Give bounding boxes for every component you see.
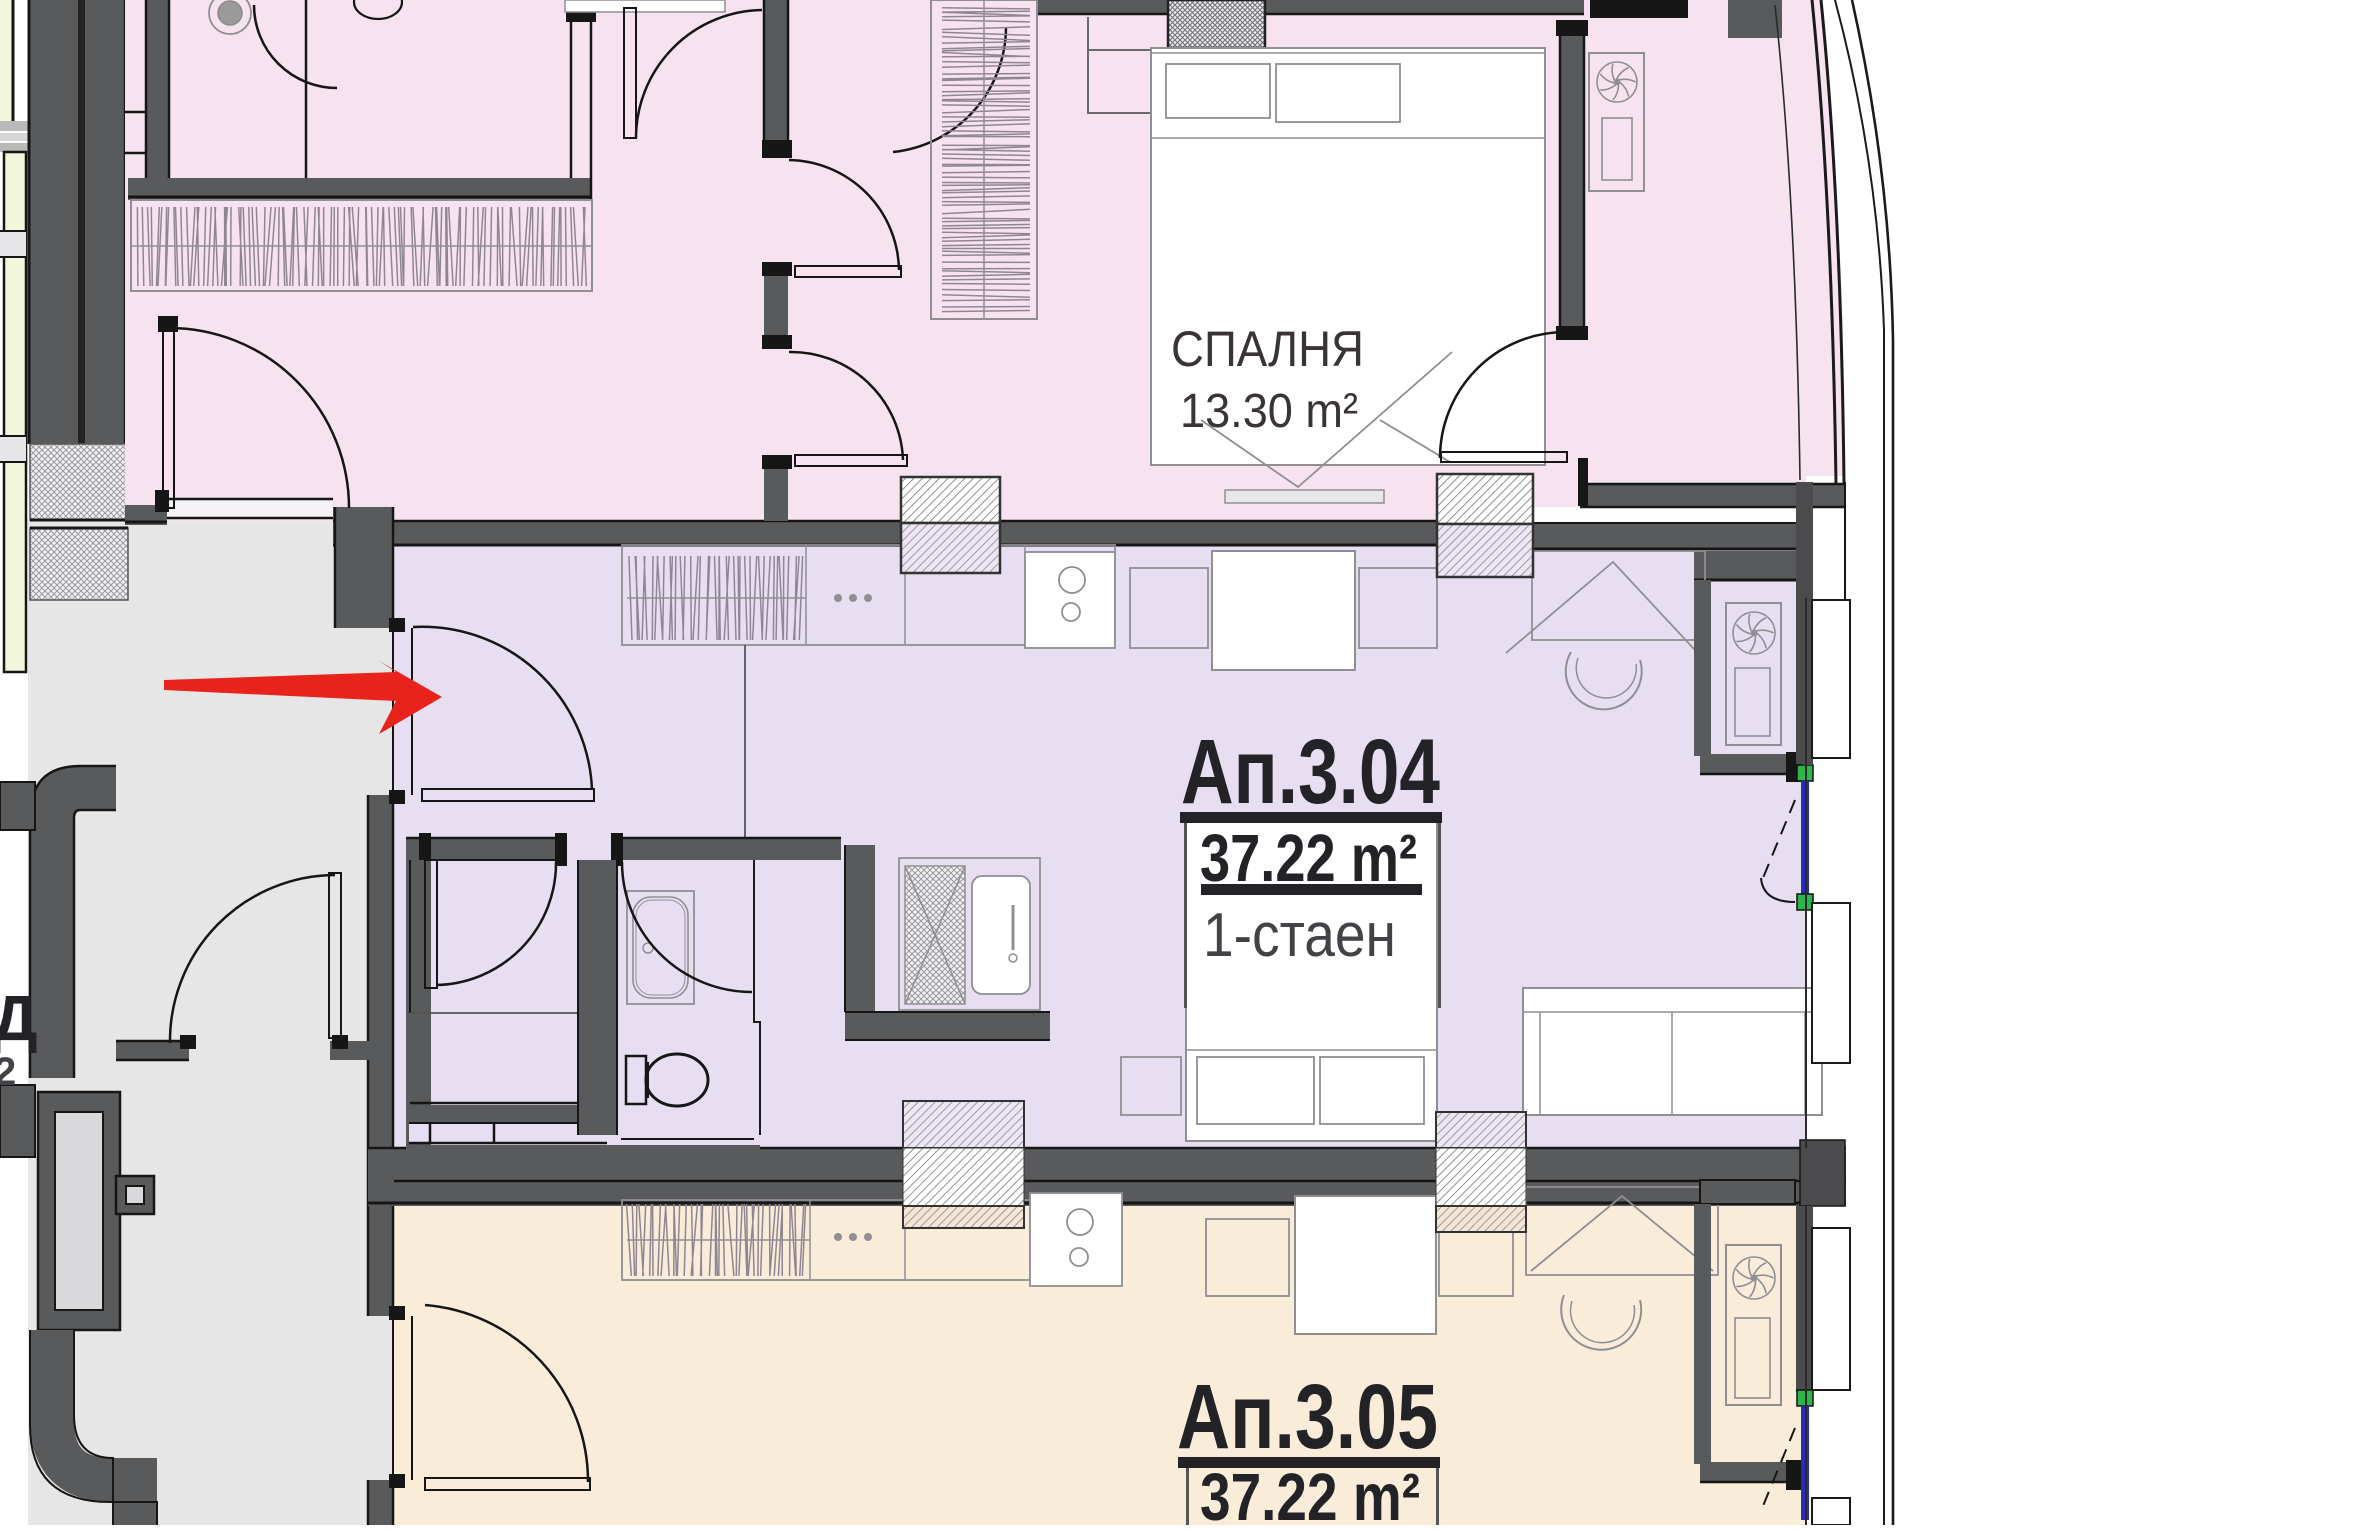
svg-text:Ап.3.05: Ап.3.05 bbox=[1177, 1366, 1438, 1468]
svg-text:37.22 m²: 37.22 m² bbox=[1200, 1460, 1420, 1525]
svg-text:СПАЛНЯ: СПАЛНЯ bbox=[1171, 321, 1364, 377]
svg-text:Ап.3.04: Ап.3.04 bbox=[1181, 721, 1440, 823]
svg-text:1-стаен: 1-стаен bbox=[1203, 901, 1396, 970]
svg-text:2: 2 bbox=[0, 1050, 16, 1094]
svg-text:Д: Д bbox=[0, 982, 38, 1054]
svg-text:13.30 m²: 13.30 m² bbox=[1180, 385, 1358, 438]
